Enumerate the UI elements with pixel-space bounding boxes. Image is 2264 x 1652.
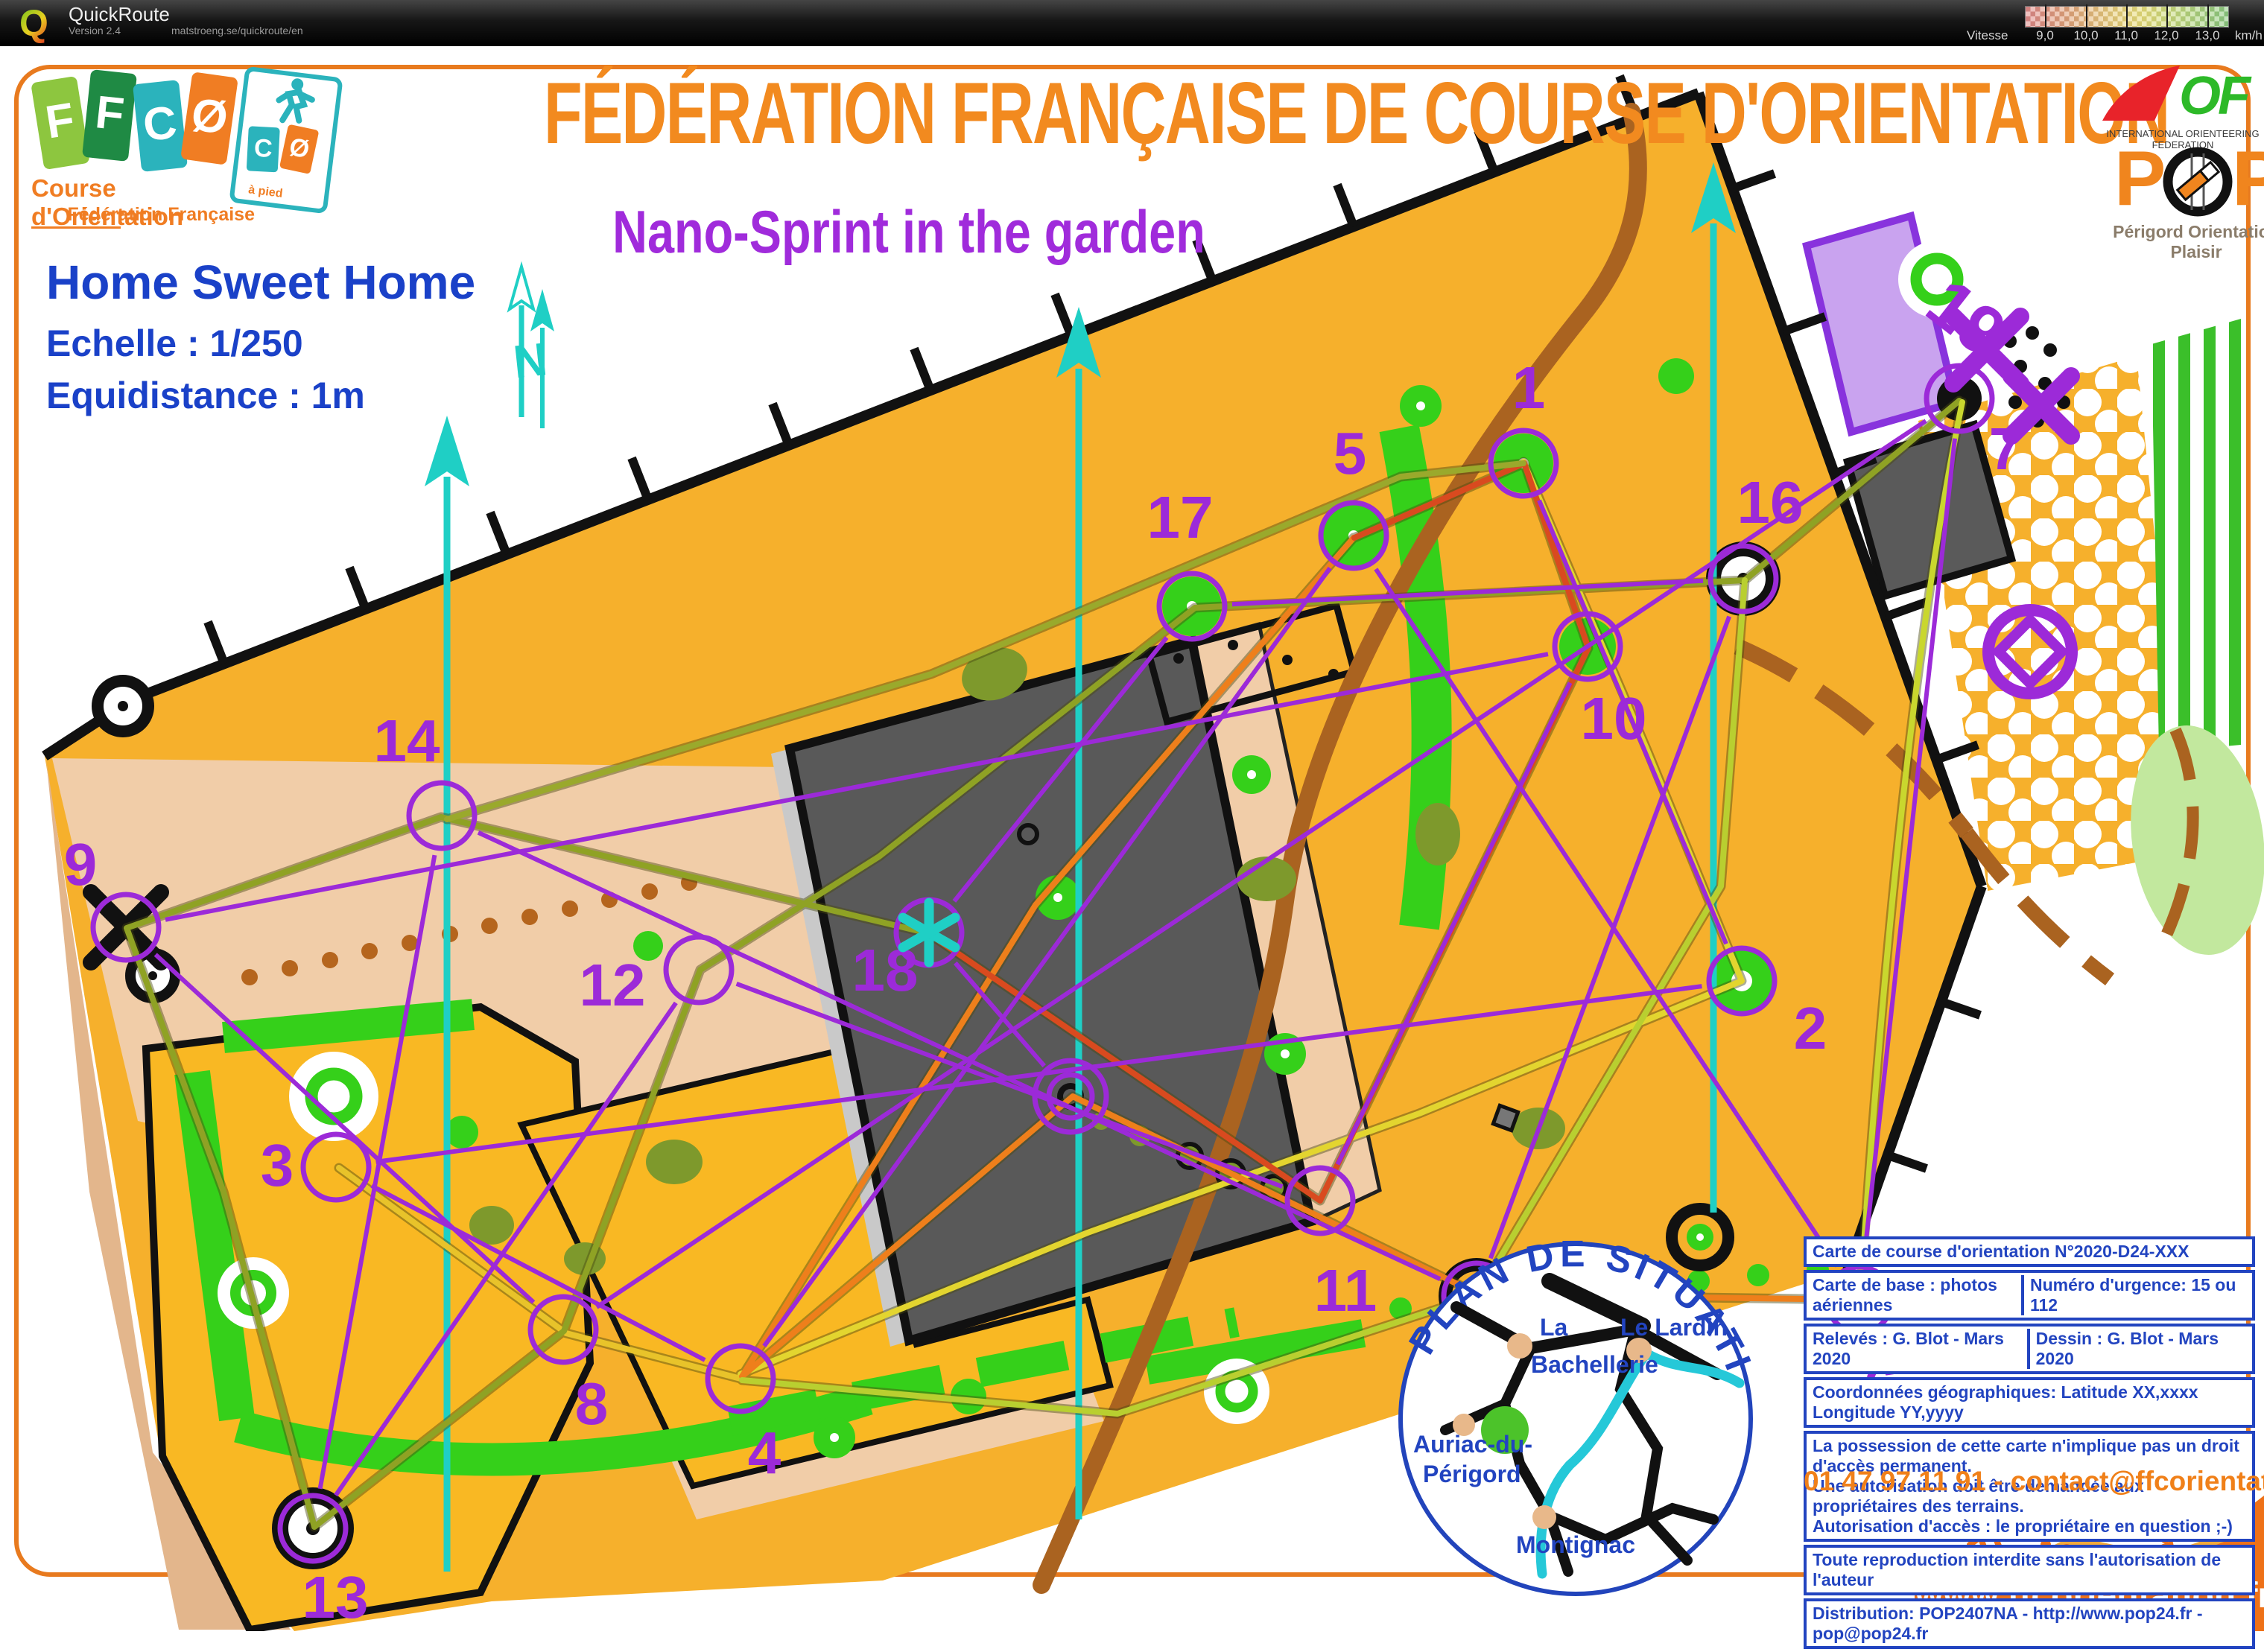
runner-icon [246,72,334,133]
ffco-card-f1: F [31,76,90,170]
pop-letter-p2: P [2232,142,2264,216]
iof-swoosh-icon [2101,66,2183,125]
pop-compass-icon [2160,144,2235,219]
contact-line: 01 47 97 11 91 - contact@ffcorientation.… [1804,1466,2264,1497]
control-number-13: 13 [302,1564,369,1630]
co-a-pied-logo: C Ø à pied [229,66,343,215]
svg-text:Auriac-du-: Auriac-du- [1413,1431,1532,1458]
info-row: Toute reproduction interdite sans l'auto… [1804,1545,2255,1595]
svg-text:Périgord: Périgord [1423,1461,1521,1487]
app-name: QuickRoute [69,3,170,26]
iof-letters: OF [2179,66,2248,127]
info-cell: Toute reproduction interdite sans l'auto… [1813,1550,2246,1590]
map-scale: Echelle : 1/250 [46,322,303,365]
co-a-pied-caption: à pied [247,183,283,201]
info-cell: Relevés : G. Blot - Mars 2020 [1813,1329,2021,1369]
control-number-10: 10 [1581,685,1647,752]
svg-text:N: N [511,334,550,388]
map-info-box: Carte de course d'orientation N°2020-D24… [1804,1236,2255,1652]
ffco-card-o: Ø [180,72,238,165]
map-subtitle: Nano-Sprint in the garden [574,198,1244,267]
info-row: Carte de course d'orientation N°2020-D24… [1804,1236,2255,1267]
legend-tick [2207,4,2209,28]
control-number-16: 16 [1737,469,1804,536]
boulder [1493,1105,1518,1130]
control-number-17: 17 [1147,484,1214,550]
control-number-5: 5 [1334,420,1367,486]
control-number-1: 1 [1512,355,1546,421]
info-cell: Coordonnées géographiques: Latitude XX,x… [1813,1382,2246,1423]
svg-text:Montignac: Montignac [1516,1531,1635,1558]
svg-text:Bachellerie: Bachellerie [1531,1351,1658,1378]
map-name: Home Sweet Home [46,255,475,310]
svg-text:Le Lardin: Le Lardin [1620,1314,1728,1341]
control-number-2: 2 [1794,995,1827,1061]
north-arrow-icon: N [510,267,554,428]
control-number-4: 4 [748,1420,781,1486]
legend-tick-label: 13,0 [2181,28,2233,43]
svg-text:La: La [1540,1314,1568,1341]
legend-tick [2045,4,2046,28]
co-card-c: C [247,126,280,172]
control-number-8: 8 [575,1370,609,1437]
info-cell: Numéro d'urgence: 15 ou 112 [2021,1275,2246,1315]
control-number-9: 9 [64,831,98,898]
control-number-14: 14 [374,708,440,774]
app-url: matstroeng.se/quickroute/en [171,25,303,36]
control-number-12: 12 [580,952,646,1018]
info-row: Coordonnées géographiques: Latitude XX,x… [1804,1377,2255,1428]
map-title: FÉDÉRATION FRANÇAISE DE COURSE D'ORIENTA… [544,64,1855,164]
control-number-11: 11 [1314,1257,1377,1324]
map-equidistance: Equidistance : 1m [46,374,365,417]
info-row: Relevés : G. Blot - Mars 2020Dessin : G.… [1804,1324,2255,1374]
quickroute-logo-icon: Q [19,3,48,43]
pop-letter-p: P [2114,142,2166,216]
ffco-rule [31,226,121,229]
ffco-card-c: C [133,80,188,172]
title-bar: Q QuickRoute Version 2.4 matstroeng.se/q… [0,0,2264,46]
speed-legend-label: Vitesse [1967,28,2008,43]
info-row: Distribution: POP2407NA - http://www.pop… [1804,1598,2255,1649]
quickroute-window: { "titlebar": { "app_name": "QuickRoute"… [0,0,2264,1631]
co-card-o: Ø [279,124,320,174]
situation-inset: PLAN DE SITUATION La Bachellerie Le Lard… [1401,1233,1761,1594]
cultivated-stripes [2152,319,2241,752]
legend-tick [2166,4,2168,28]
info-cell: Distribution: POP2407NA - http://www.pop… [1813,1604,2246,1644]
info-row: Carte de base : photos aériennesNuméro d… [1804,1270,2255,1321]
info-cell: Dessin : G. Blot - Mars 2020 [2027,1329,2246,1369]
legend-tick [2086,4,2087,28]
info-cell: Carte de base : photos aériennes [1813,1275,2015,1315]
legend-unit: km/h [2235,28,2263,43]
app-version: Version 2.4 [69,25,121,36]
control-number-3: 3 [261,1132,294,1198]
pop-caption: Périgord Orientation Plaisir [2096,222,2264,262]
info-cell: Carte de course d'orientation N°2020-D24… [1813,1242,2189,1262]
legend-tick [2126,4,2128,28]
ffco-card-f2: F [82,69,137,162]
ffco-caption2: Fédération Française [31,204,255,226]
